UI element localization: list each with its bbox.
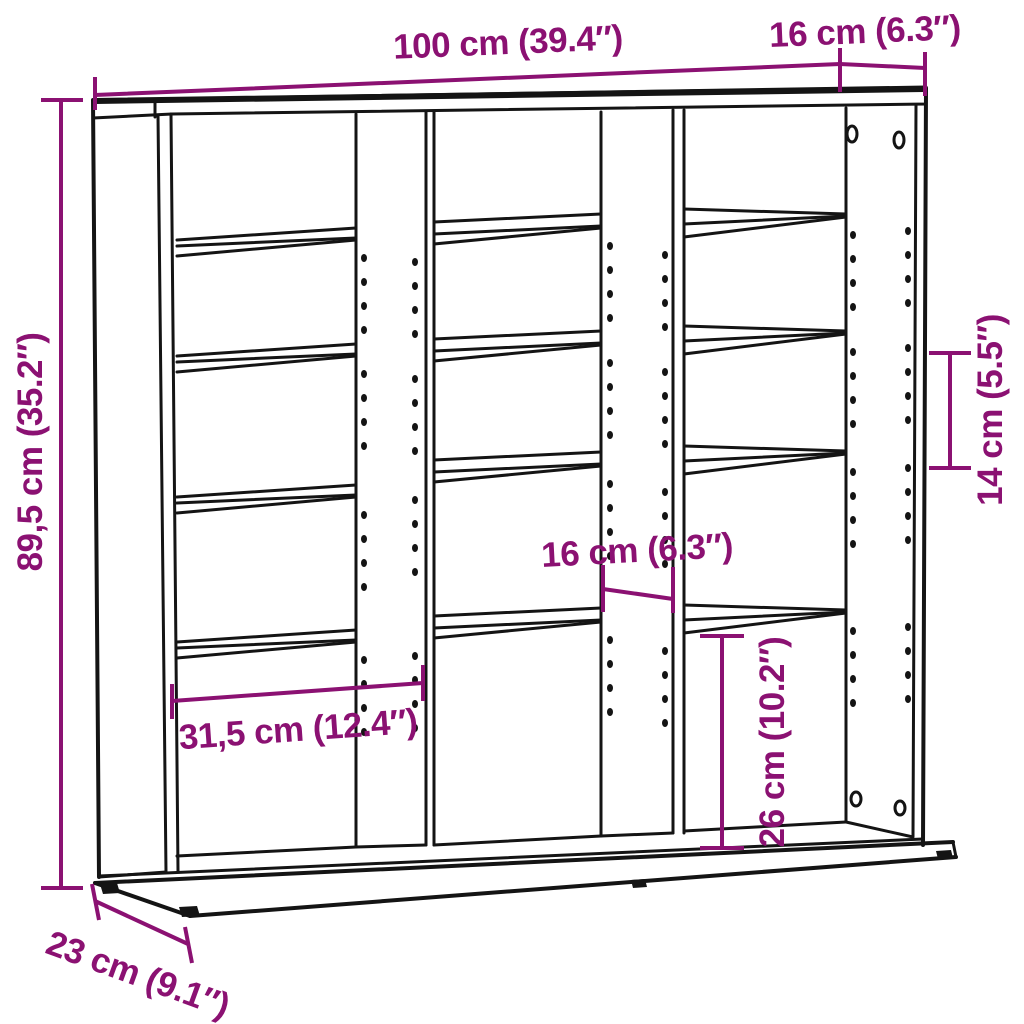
dimension-inner-width-left: 31,5 cm (12.4″) [172, 665, 423, 757]
dimension-shelf-spacing-right: 14 cm (5.5″) [929, 314, 1010, 506]
left-side-panel [93, 100, 178, 877]
plinth-base [95, 839, 956, 916]
dim-shelf-spacing-label: 14 cm (5.5″) [971, 314, 1010, 506]
partition-right [601, 110, 684, 836]
dim-depth-top-label: 16 cm (6.3″) [768, 8, 961, 55]
dim-height-left-label: 89,5 cm (35.2″) [11, 333, 50, 572]
dim-bottom-compartment-label: 26 cm (10.2″) [753, 637, 792, 848]
right-panel-face [846, 108, 913, 837]
dim-inner-depth-label: 16 cm (6.3″) [540, 526, 733, 575]
dim-base-depth-label: 23 cm (9.1″) [41, 923, 234, 1024]
dim-inner-width-label: 31,5 cm (12.4″) [178, 702, 419, 758]
dimension-base-depth: 23 cm (9.1″) [41, 884, 234, 1024]
dimension-bottom-compartment: 26 cm (10.2″) [700, 636, 792, 848]
dim-width-top-label: 100 cm (39.4″) [392, 18, 623, 67]
right-side-edge [913, 88, 926, 845]
product-dimension-diagram: 100 cm (39.4″) 16 cm (6.3″) 89,5 cm (35.… [0, 0, 1024, 1024]
adjustable-shelves [177, 209, 846, 658]
shelf-unit-drawing: 100 cm (39.4″) 16 cm (6.3″) 89,5 cm (35.… [0, 0, 1024, 1024]
feet [100, 850, 953, 917]
dimension-height-left: 89,5 cm (35.2″) [11, 100, 83, 888]
dimension-inner-depth-middle: 16 cm (6.3″) [540, 526, 733, 613]
cabinet-structure [93, 87, 956, 917]
